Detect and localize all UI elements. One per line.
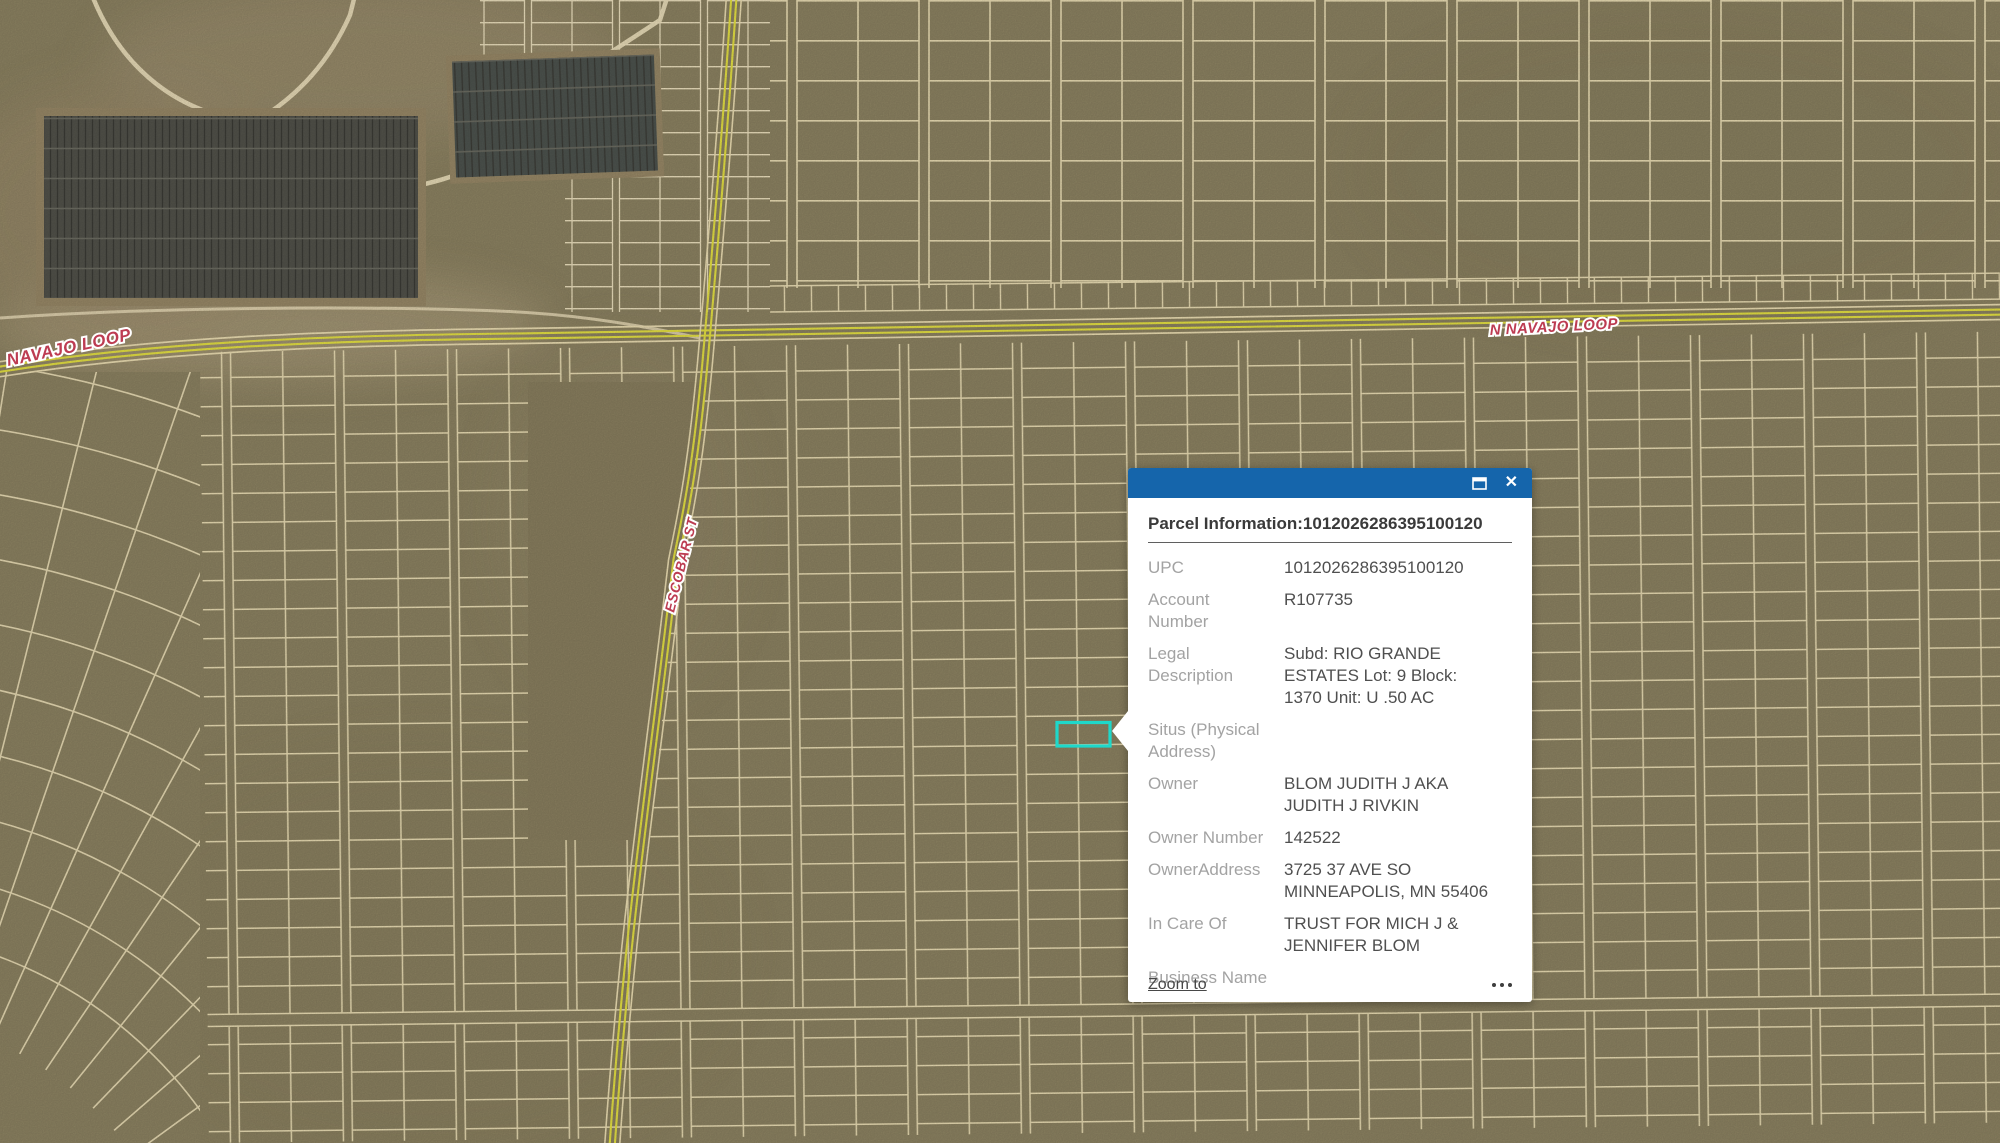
- field-row-in-care-of: In Care Of TRUST FOR MICH J & JENNIFER B…: [1148, 913, 1512, 957]
- map-canvas[interactable]: NAVAJO LOOP N NAVAJO LOOP ESCOBAR ST: [0, 0, 2000, 1143]
- close-icon[interactable]: ✕: [1505, 475, 1518, 491]
- terrain-grain: [0, 0, 2000, 1143]
- field-value: TRUST FOR MICH J & JENNIFER BLOM: [1284, 913, 1512, 957]
- popup-body: Parcel Information:1012026286395100120 U…: [1128, 498, 1532, 984]
- field-value: 142522: [1284, 827, 1512, 849]
- parcel-info-popup: ✕ Parcel Information:1012026286395100120…: [1128, 468, 1532, 1002]
- popup-title: Parcel Information:1012026286395100120: [1148, 512, 1512, 536]
- field-row-account-number: Account Number R107735: [1148, 589, 1512, 633]
- field-label: Account Number: [1148, 589, 1284, 633]
- popup-footer: Zoom to: [1128, 972, 1532, 998]
- field-label: UPC: [1148, 557, 1284, 579]
- zoom-to-link[interactable]: Zoom to: [1148, 976, 1207, 994]
- field-row-owner-address: OwnerAddress 3725 37 AVE SO MINNEAPOLIS,…: [1148, 859, 1512, 903]
- field-row-situs: Situs (Physical Address): [1148, 719, 1512, 763]
- overflow-menu-icon[interactable]: [1488, 979, 1516, 991]
- popup-pointer: [1112, 711, 1128, 751]
- field-value: Subd: RIO GRANDE ESTATES Lot: 9 Block: 1…: [1284, 643, 1512, 709]
- field-value: 3725 37 AVE SO MINNEAPOLIS, MN 55406: [1284, 859, 1512, 903]
- field-value: R107735: [1284, 589, 1512, 633]
- field-label: In Care Of: [1148, 913, 1284, 957]
- field-row-owner-number: Owner Number 142522: [1148, 827, 1512, 849]
- field-row-upc: UPC 1012026286395100120: [1148, 557, 1512, 579]
- field-row-legal-description: Legal Description Subd: RIO GRANDE ESTAT…: [1148, 643, 1512, 709]
- maximize-icon[interactable]: [1472, 477, 1487, 490]
- popup-header: ✕: [1128, 468, 1532, 498]
- field-value: 1012026286395100120: [1284, 557, 1512, 579]
- title-separator: [1148, 542, 1512, 543]
- field-label: Owner Number: [1148, 827, 1284, 849]
- field-value: [1284, 719, 1512, 763]
- field-label: Owner: [1148, 773, 1284, 817]
- field-label: Legal Description: [1148, 643, 1284, 709]
- field-label: OwnerAddress: [1148, 859, 1284, 903]
- field-value: BLOM JUDITH J AKA JUDITH J RIVKIN: [1284, 773, 1512, 817]
- field-label: Situs (Physical Address): [1148, 719, 1284, 763]
- field-row-owner: Owner BLOM JUDITH J AKA JUDITH J RIVKIN: [1148, 773, 1512, 817]
- gis-app: NAVAJO LOOP N NAVAJO LOOP ESCOBAR ST ✕ P…: [0, 0, 2000, 1143]
